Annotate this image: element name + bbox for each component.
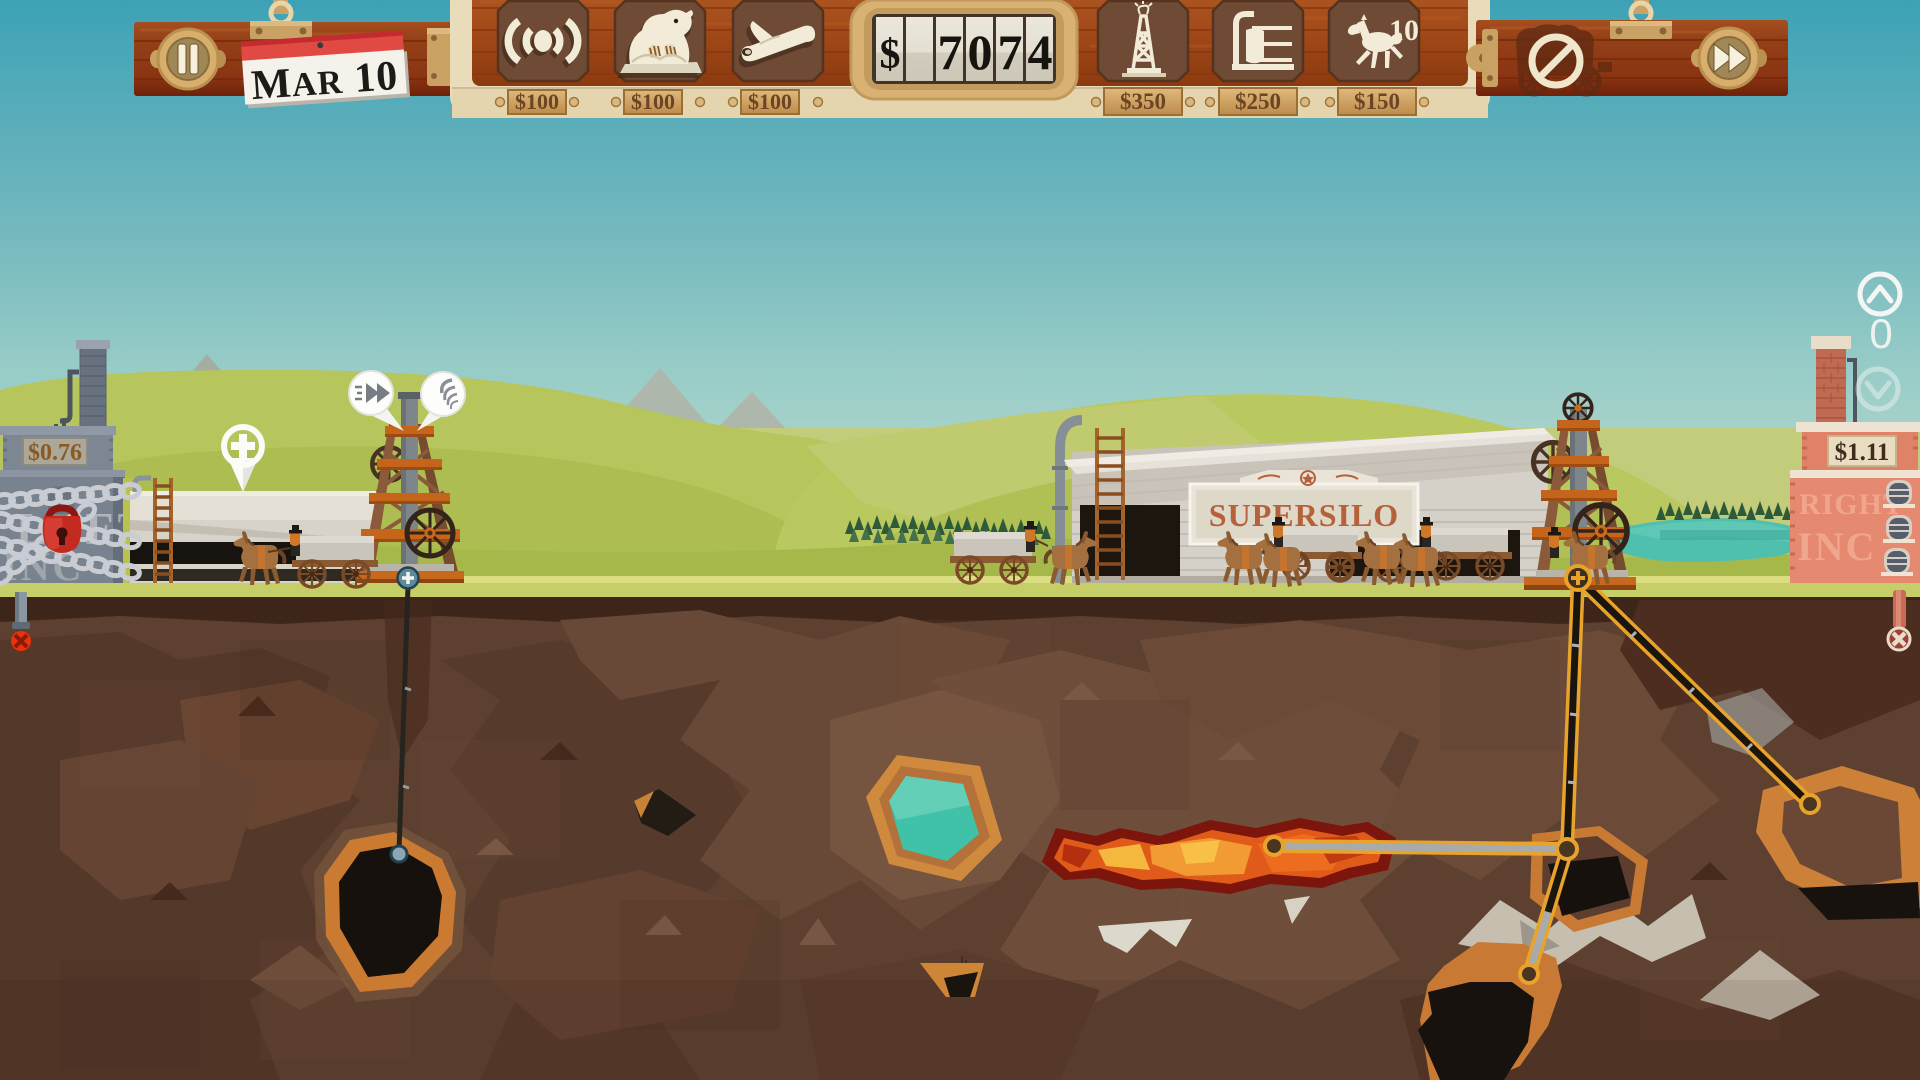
svg-text:$100: $100 [748, 89, 792, 114]
svg-text:$: $ [880, 32, 901, 78]
svg-text:10: 10 [1389, 14, 1419, 47]
svg-text:INC: INC [1797, 524, 1876, 569]
svg-text:$100: $100 [631, 89, 675, 114]
svg-text:$1.11: $1.11 [1835, 439, 1890, 466]
svg-text:SUPERSILO: SUPERSILO [1209, 497, 1399, 533]
svg-text:$100: $100 [515, 89, 559, 114]
svg-text:$0.76: $0.76 [28, 440, 82, 466]
svg-text:0: 0 [968, 24, 993, 80]
svg-text:$150: $150 [1354, 89, 1400, 114]
svg-text:7: 7 [998, 24, 1023, 80]
svg-text:4: 4 [1028, 24, 1053, 80]
svg-text:$250: $250 [1235, 89, 1281, 114]
svg-text:7: 7 [938, 24, 963, 80]
svg-text:$350: $350 [1120, 89, 1166, 114]
svg-text:0: 0 [1869, 310, 1892, 357]
